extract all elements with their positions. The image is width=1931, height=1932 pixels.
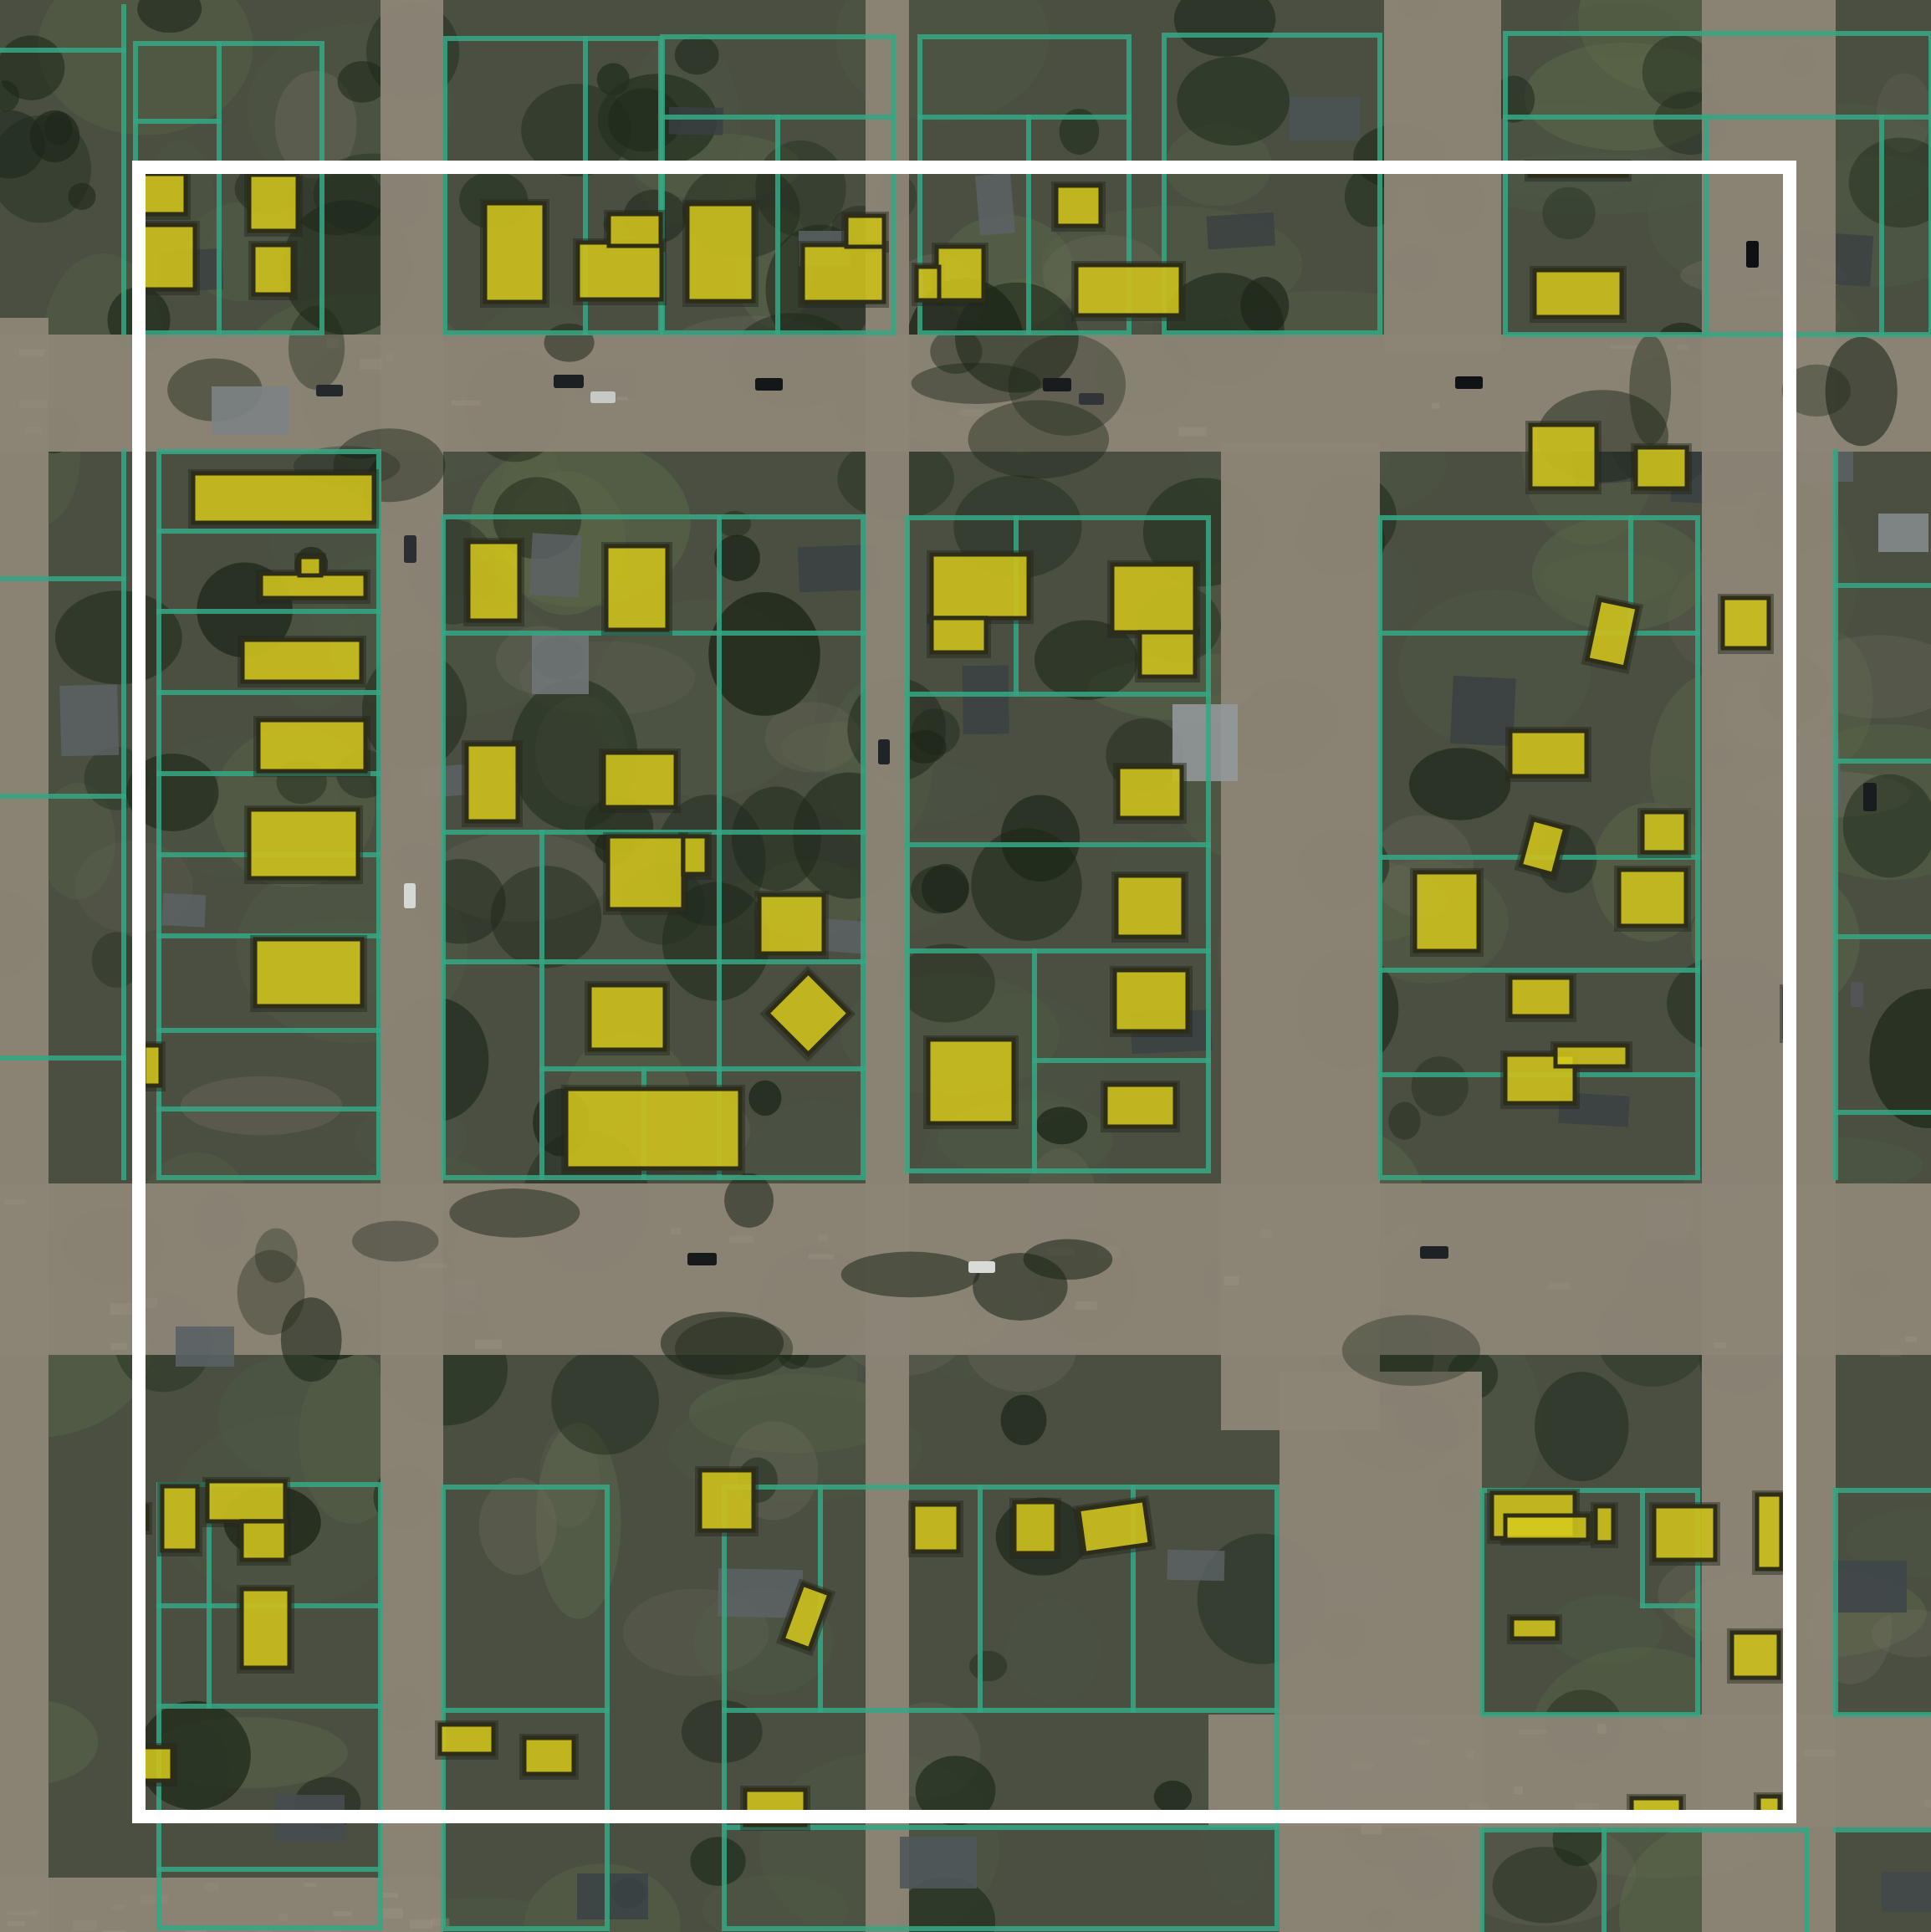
building-footprint[interactable] [244, 171, 303, 237]
road-texture [140, 1895, 168, 1904]
building-footprint-shape[interactable] [1510, 731, 1586, 776]
road-texture [1906, 1337, 1917, 1342]
tree-canopy [969, 1651, 1007, 1681]
building-footprint[interactable] [1637, 808, 1691, 858]
building-footprint-shape[interactable] [139, 225, 195, 289]
tree-canopy [922, 864, 969, 913]
building-footprint-shape[interactable] [1076, 265, 1181, 315]
building-footprint-shape[interactable] [609, 214, 661, 246]
building-footprint-shape[interactable] [932, 618, 986, 652]
building-footprint[interactable] [1530, 266, 1627, 323]
tree-canopy [1154, 1781, 1192, 1812]
building-footprint-shape[interactable] [249, 810, 358, 878]
vehicle [1863, 783, 1877, 811]
building-footprint[interactable] [1507, 1614, 1562, 1644]
road [1221, 443, 1380, 1430]
road [0, 318, 49, 1932]
road-texture [617, 396, 628, 400]
building-footprint[interactable] [682, 200, 759, 307]
building-footprint[interactable] [1631, 443, 1692, 494]
building-footprint[interactable] [248, 241, 298, 300]
tree-canopy [1826, 337, 1898, 447]
road-texture [111, 1905, 125, 1910]
building-footprint-shape[interactable] [243, 640, 361, 682]
building-footprint-shape[interactable] [253, 245, 293, 294]
rooftop [529, 533, 582, 597]
tree-canopy [1412, 1056, 1469, 1116]
building-footprint-shape[interactable] [700, 1470, 753, 1531]
building-footprint-shape[interactable] [255, 939, 362, 1006]
road-texture [431, 1919, 450, 1926]
building-footprint-shape[interactable] [1106, 1085, 1175, 1127]
building-footprint[interactable] [601, 542, 672, 636]
building-footprint[interactable] [480, 199, 549, 308]
building-footprint-shape[interactable] [468, 542, 519, 621]
vehicle [316, 385, 343, 396]
road-texture [960, 409, 984, 417]
tree-canopy [491, 866, 602, 968]
building-footprint-shape[interactable] [687, 204, 753, 301]
tree-canopy [748, 1081, 781, 1116]
road [0, 1878, 443, 1932]
tree-canopy [289, 163, 383, 235]
tree-canopy [69, 183, 96, 210]
rooftop [59, 684, 119, 756]
vehicle [1079, 393, 1104, 405]
building-footprint-shape[interactable] [467, 744, 518, 821]
road-texture [18, 349, 44, 356]
tree-canopy [255, 1229, 298, 1284]
building-footprint-shape[interactable] [162, 1486, 197, 1551]
building-footprint[interactable] [1111, 871, 1188, 943]
road-texture [1361, 1825, 1381, 1834]
vehicle [968, 1261, 995, 1273]
road-texture [111, 1343, 127, 1350]
building-footprint-shape[interactable] [1115, 970, 1188, 1031]
building-footprint-shape[interactable] [1757, 1495, 1781, 1569]
road-texture [278, 1913, 289, 1920]
road-texture [1678, 344, 1690, 350]
road-texture [1432, 403, 1440, 409]
tree-canopy [1535, 1372, 1629, 1481]
building-footprint-shape[interactable] [1732, 1633, 1779, 1678]
tree-canopy [1342, 1315, 1480, 1386]
building-footprint-shape[interactable] [1636, 447, 1687, 488]
tree-canopy [841, 1252, 980, 1298]
road-texture [1075, 1301, 1096, 1310]
building-footprint-shape[interactable] [578, 243, 662, 299]
tree-canopy [449, 1188, 580, 1238]
tree-canopy [1388, 1102, 1420, 1140]
building-footprint[interactable] [585, 981, 670, 1055]
building-footprint-shape[interactable] [590, 985, 665, 1050]
road-texture [418, 1264, 447, 1269]
rooftop [1833, 1561, 1907, 1613]
rooftop [532, 632, 589, 694]
vehicle [404, 883, 416, 908]
road-texture [818, 1234, 828, 1240]
building-footprint-shape[interactable] [1556, 1045, 1627, 1066]
building-footprint-shape[interactable] [1723, 598, 1769, 648]
road-texture [1261, 1229, 1272, 1238]
building-footprint[interactable] [1752, 1490, 1786, 1575]
building-footprint-shape[interactable] [1512, 1618, 1557, 1638]
building-footprint-shape[interactable] [1654, 1506, 1715, 1560]
road-texture [1880, 1349, 1901, 1357]
road-texture [1549, 1283, 1570, 1291]
building-footprint-shape[interactable] [1014, 1502, 1056, 1553]
building-footprint[interactable] [1718, 594, 1774, 654]
building-footprint-shape[interactable] [1415, 872, 1479, 951]
building-footprint-shape[interactable] [937, 247, 983, 300]
building-footprint-shape[interactable] [485, 203, 544, 302]
tree-canopy [690, 1837, 745, 1886]
building-footprint[interactable] [435, 1720, 498, 1760]
building-footprint-shape[interactable] [606, 546, 667, 630]
road-texture [1467, 1751, 1474, 1759]
road-texture [1514, 1786, 1523, 1794]
rooftop [963, 665, 1009, 733]
tree-canopy [55, 590, 182, 684]
building-footprint-shape[interactable] [1642, 812, 1686, 852]
building-footprint-shape[interactable] [242, 1521, 286, 1560]
building-footprint-shape[interactable] [1112, 565, 1195, 632]
building-footprint[interactable] [250, 935, 367, 1012]
rooftop [900, 1837, 977, 1889]
vehicle [878, 739, 890, 764]
tree-canopy [897, 944, 994, 1023]
vehicle [755, 378, 783, 391]
building-footprint-shape[interactable] [1116, 876, 1183, 937]
ground-patch [1005, 1600, 1101, 1702]
road-texture [19, 400, 47, 408]
rooftop [1207, 212, 1275, 249]
building-footprint[interactable] [519, 1734, 579, 1780]
building-footprint-shape[interactable] [1596, 1506, 1613, 1542]
vehicle [590, 391, 616, 403]
vehicle [554, 375, 584, 388]
building-footprint[interactable] [1009, 1498, 1061, 1559]
road-texture [729, 1235, 753, 1243]
building-footprint[interactable] [908, 1500, 963, 1557]
building-footprint[interactable] [561, 1085, 745, 1174]
building-footprint[interactable] [244, 805, 363, 884]
building-footprint[interactable] [253, 716, 370, 777]
building-footprint[interactable] [462, 740, 523, 827]
building-footprint[interactable] [1487, 1489, 1593, 1546]
building-footprint[interactable] [1525, 421, 1602, 494]
vehicle [687, 1253, 717, 1265]
rooftop [1882, 1872, 1931, 1912]
building-footprint[interactable] [188, 469, 379, 529]
building-footprint[interactable] [1073, 1495, 1156, 1560]
road-texture [1412, 1738, 1430, 1745]
building-footprint[interactable] [740, 1786, 810, 1831]
building-footprint[interactable] [695, 1466, 759, 1536]
tree-canopy [675, 1317, 793, 1380]
road-texture [4, 1199, 25, 1205]
building-footprint-shape[interactable] [249, 175, 298, 231]
rooftop [577, 1873, 648, 1919]
rooftop [212, 386, 289, 435]
building-footprint[interactable] [1110, 966, 1193, 1037]
vehicle [404, 535, 416, 563]
building-footprint[interactable] [1591, 1502, 1618, 1548]
road-texture [1178, 427, 1206, 436]
building-footprint-shape[interactable] [803, 245, 884, 302]
building-footprint-shape[interactable] [1056, 186, 1101, 226]
rooftop [1167, 1550, 1224, 1582]
building-footprint[interactable] [1113, 763, 1187, 824]
road-texture [1597, 1724, 1607, 1734]
tree-canopy [289, 306, 345, 390]
road-texture [334, 1911, 352, 1916]
building-footprint[interactable] [1051, 181, 1106, 232]
building-footprint-shape[interactable] [759, 895, 824, 953]
annotated-aerial-map[interactable] [0, 0, 1931, 1932]
road-texture [452, 401, 481, 406]
road-texture [8, 1921, 25, 1926]
tree-canopy [352, 1220, 438, 1261]
map-viewport[interactable] [0, 0, 1931, 1932]
road-texture [73, 1920, 97, 1930]
road-texture [203, 1882, 218, 1891]
tree-canopy [1240, 277, 1289, 335]
road-texture [410, 1919, 432, 1929]
vehicle [1043, 378, 1071, 391]
building-footprint-shape[interactable] [242, 1589, 289, 1668]
vehicle [1746, 241, 1759, 268]
building-footprint[interactable] [1505, 974, 1576, 1022]
building-footprint-shape[interactable] [1505, 1515, 1588, 1540]
road [1384, 0, 1501, 351]
building-footprint-shape[interactable] [913, 1505, 958, 1551]
building-footprint[interactable] [1071, 261, 1186, 321]
building-footprint-shape[interactable] [440, 1725, 493, 1754]
building-footprint[interactable] [1727, 1628, 1784, 1684]
building-footprint-shape[interactable] [144, 1045, 161, 1086]
building-footprint-shape[interactable] [1140, 632, 1195, 677]
road [1280, 1372, 1482, 1932]
tree-canopy [1493, 1847, 1597, 1923]
road-texture [1224, 1276, 1239, 1285]
building-footprint[interactable] [1410, 868, 1484, 957]
road-texture [1610, 345, 1636, 349]
road [381, 0, 443, 1932]
building-footprint[interactable] [754, 891, 829, 959]
road-texture [25, 427, 42, 434]
tree-canopy [597, 64, 630, 96]
road-texture [304, 1883, 316, 1887]
road-texture [1805, 1750, 1836, 1757]
building-footprint[interactable] [237, 1585, 294, 1674]
building-footprint-shape[interactable] [207, 1481, 285, 1521]
tree-canopy [1036, 1107, 1088, 1144]
tree-canopy [1001, 1395, 1047, 1445]
vehicle [1455, 376, 1483, 389]
tree-canopy [708, 592, 820, 716]
dirt-patch [181, 1076, 342, 1135]
vehicle [1420, 1246, 1448, 1259]
tree-canopy [724, 1173, 774, 1228]
road-texture [808, 1254, 833, 1259]
road-texture [360, 359, 382, 370]
building-footprint-shape[interactable] [1530, 425, 1596, 488]
building-footprint-shape[interactable] [928, 1040, 1014, 1123]
building-footprint-shape[interactable] [846, 216, 884, 247]
building-footprint-shape[interactable] [1079, 1500, 1151, 1553]
rooftop [1290, 97, 1360, 141]
road-texture [475, 1340, 502, 1350]
building-footprint-shape[interactable] [1619, 870, 1686, 926]
building-footprint-shape[interactable] [608, 836, 683, 909]
building-footprint-shape[interactable] [604, 753, 676, 807]
rooftop [1878, 514, 1928, 552]
road-texture [1351, 1763, 1374, 1768]
rooftop [668, 107, 723, 135]
building-footprint[interactable] [157, 1482, 202, 1556]
road-texture [671, 1228, 681, 1234]
tree-canopy [675, 36, 719, 74]
rooftop [975, 173, 1015, 236]
building-footprint[interactable] [923, 1035, 1019, 1129]
building-footprint-shape[interactable] [566, 1089, 740, 1168]
building-footprint[interactable] [463, 538, 524, 626]
tree-canopy [1409, 748, 1510, 820]
tree-canopy [1542, 187, 1595, 240]
building-footprint-shape[interactable] [683, 836, 707, 874]
building-footprint-shape[interactable] [1118, 767, 1182, 818]
road-texture [1469, 1802, 1488, 1810]
road-texture [8, 1911, 36, 1914]
tree-canopy [1001, 795, 1080, 882]
road-texture [1663, 1720, 1687, 1729]
building-footprint-shape[interactable] [299, 557, 321, 575]
tree-canopy [551, 1348, 659, 1455]
building-footprint-shape[interactable] [258, 720, 365, 771]
building-footprint-shape[interactable] [1535, 270, 1622, 317]
building-footprint-shape[interactable] [1510, 978, 1571, 1016]
building-footprint[interactable] [1505, 727, 1591, 782]
road-texture [1714, 1342, 1726, 1348]
rooftop [161, 893, 206, 928]
tree-canopy [1177, 57, 1290, 146]
building-footprint-shape[interactable] [193, 473, 374, 523]
rooftop [176, 1326, 234, 1367]
building-footprint[interactable] [599, 749, 681, 813]
road-texture [1924, 1800, 1931, 1807]
building-footprint[interactable] [1101, 1081, 1180, 1132]
building-footprint[interactable] [1649, 1502, 1720, 1566]
building-footprint-shape[interactable] [917, 267, 939, 300]
road-texture [1519, 1730, 1547, 1735]
building-footprint-shape[interactable] [524, 1738, 574, 1774]
building-footprint[interactable] [238, 636, 366, 687]
road-texture [386, 353, 394, 362]
building-footprint[interactable] [1614, 866, 1691, 932]
tree-canopy [0, 35, 64, 100]
building-footprint-shape[interactable] [932, 555, 1029, 618]
vehicle [1851, 982, 1863, 1007]
